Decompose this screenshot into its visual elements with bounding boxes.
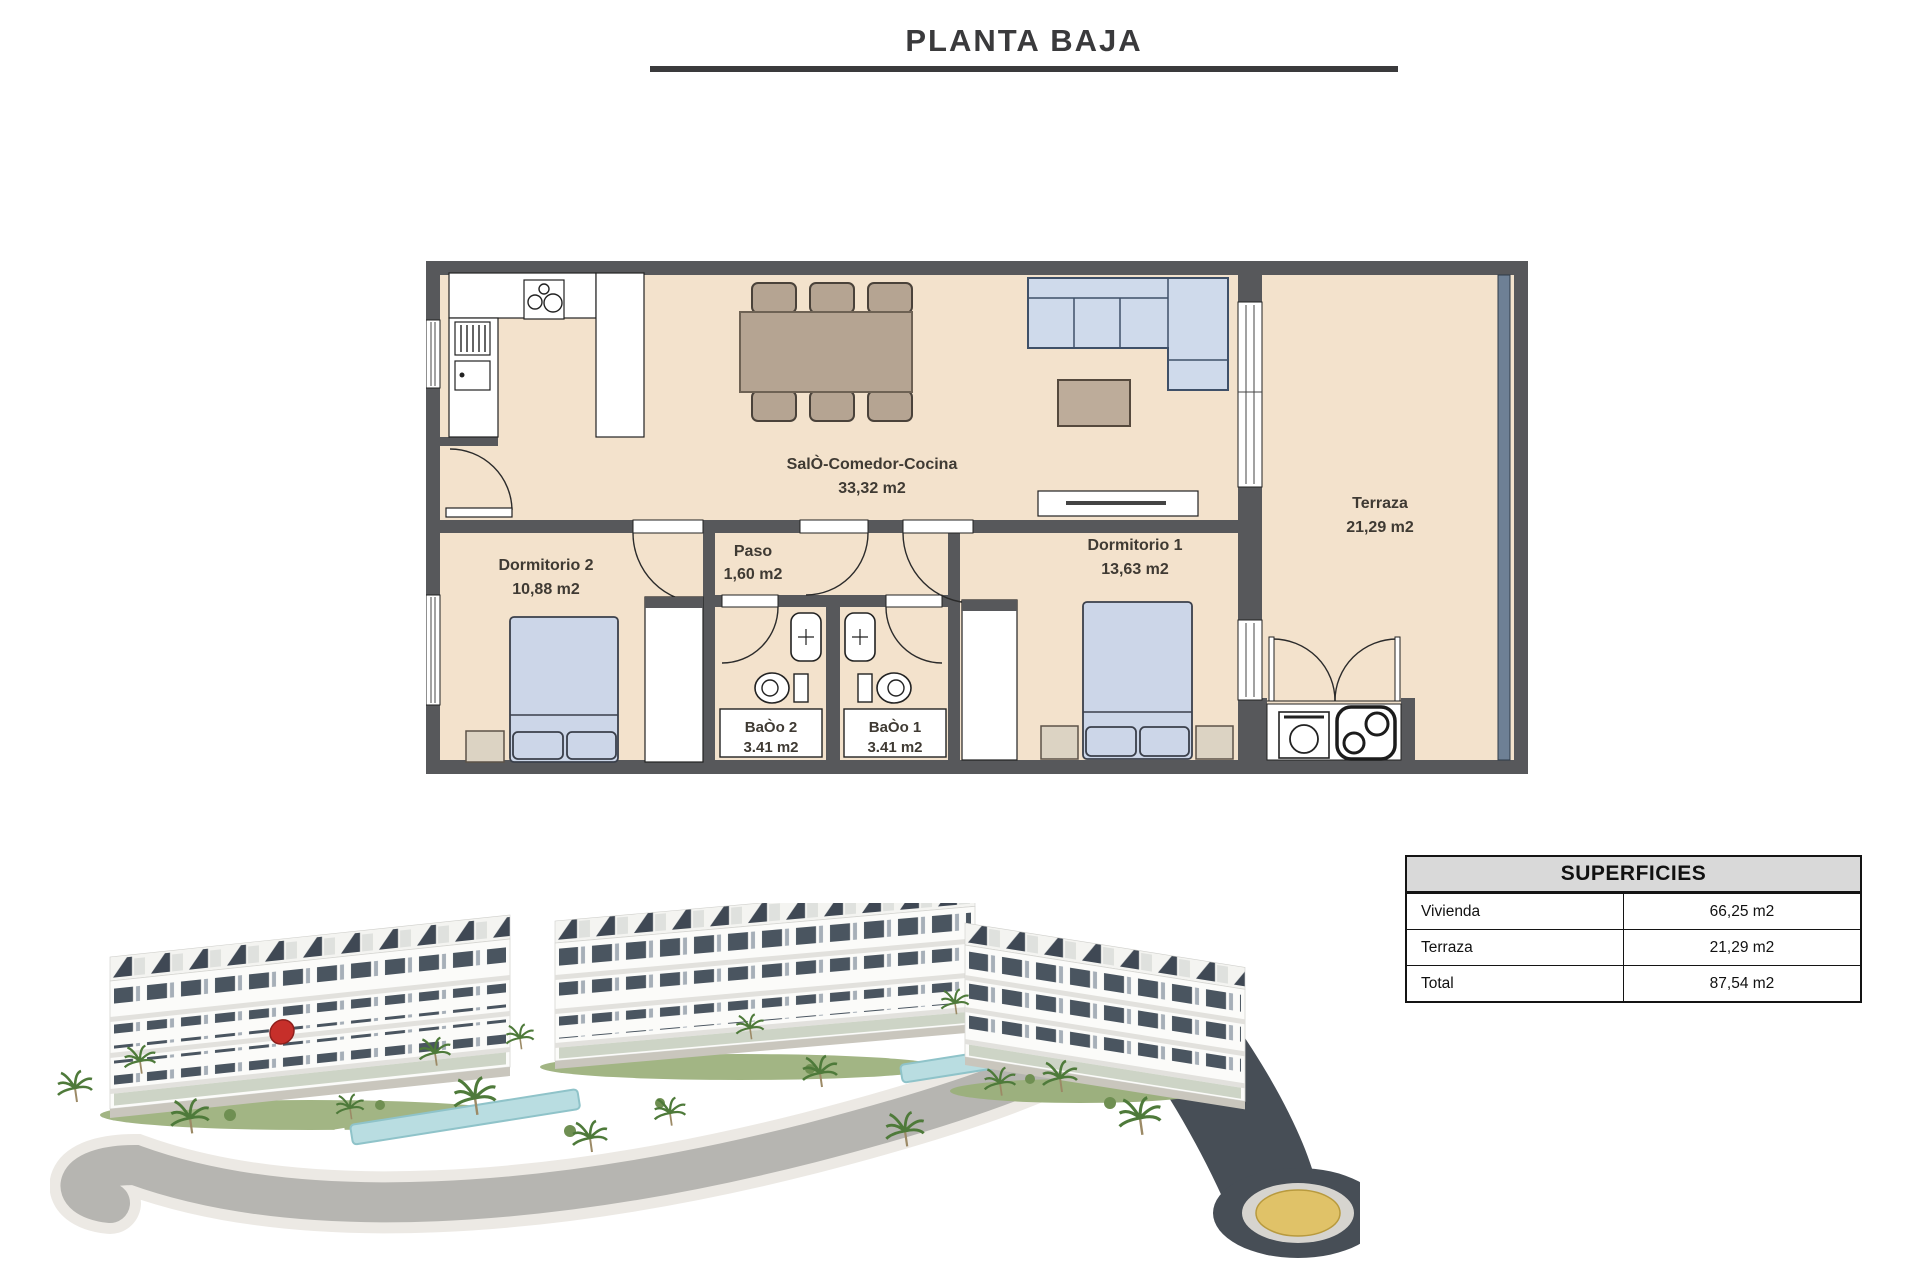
bedside-table bbox=[1196, 726, 1233, 759]
bedside-table bbox=[1041, 726, 1078, 759]
table-row: Total 87,54 m2 bbox=[1407, 965, 1860, 1001]
dining-chair bbox=[810, 283, 854, 313]
title-underline bbox=[650, 66, 1398, 72]
room-label-dormitorio2: Dormitorio 2 bbox=[498, 557, 593, 574]
room-label-salon: SalÒ-Comedor-Cocina bbox=[787, 454, 958, 473]
building-render bbox=[50, 903, 1360, 1273]
row-label: Total bbox=[1407, 966, 1624, 1001]
wardrobe bbox=[645, 597, 703, 762]
laundry-area bbox=[1267, 704, 1401, 760]
dining-chair bbox=[868, 283, 912, 313]
toilet bbox=[858, 673, 911, 703]
terrace-glass-railing bbox=[1498, 275, 1510, 760]
building-block-middle bbox=[555, 903, 975, 1069]
washing-machine bbox=[1279, 712, 1329, 758]
dining-set bbox=[740, 283, 912, 421]
title-block: PLANTA BAJA bbox=[650, 22, 1398, 72]
kitchen-island bbox=[596, 273, 644, 437]
page: PLANTA BAJA bbox=[0, 0, 1920, 1280]
room-area-salon: 33,32 m2 bbox=[838, 480, 906, 497]
page-title: PLANTA BAJA bbox=[650, 22, 1398, 61]
table-row: Vivienda 66,25 m2 bbox=[1407, 893, 1860, 929]
superficies-header: SUPERFICIES bbox=[1407, 857, 1860, 893]
bedroom1-furniture bbox=[962, 600, 1233, 760]
building-block-left bbox=[110, 915, 510, 1118]
dining-chair bbox=[752, 391, 796, 421]
coffee-table bbox=[1058, 380, 1130, 426]
room-area-bano1: 3.41 m2 bbox=[867, 739, 922, 756]
table-row: Terraza 21,29 m2 bbox=[1407, 929, 1860, 965]
room-area-dormitorio2: 10,88 m2 bbox=[512, 581, 580, 598]
dining-table bbox=[740, 312, 912, 392]
dining-chair bbox=[810, 391, 854, 421]
dining-chair bbox=[752, 283, 796, 313]
row-label: Vivienda bbox=[1407, 894, 1624, 929]
kitchen-counter bbox=[449, 273, 596, 318]
entrance-door-leaf bbox=[446, 508, 512, 517]
room-label-bano1: BaÒo 1 bbox=[869, 718, 922, 736]
row-value: 66,25 m2 bbox=[1624, 894, 1860, 929]
room-area-dormitorio1: 13,63 m2 bbox=[1101, 561, 1169, 578]
tv-unit bbox=[1038, 491, 1198, 516]
row-value: 87,54 m2 bbox=[1624, 966, 1860, 1001]
wardrobe bbox=[962, 600, 1017, 760]
toilet bbox=[755, 673, 808, 703]
bed-dormitorio2 bbox=[510, 617, 618, 762]
room-label-dormitorio1: Dormitorio 1 bbox=[1087, 537, 1182, 554]
room-area-paso: 1,60 m2 bbox=[724, 566, 783, 583]
bed-dormitorio1 bbox=[1083, 602, 1192, 759]
room-label-paso: Paso bbox=[734, 543, 772, 560]
room-area-terraza: 21,29 m2 bbox=[1346, 519, 1414, 536]
row-label: Terraza bbox=[1407, 930, 1624, 965]
floor-plan: SalÒ-Comedor-Cocina 33,32 m2 Terraza 21,… bbox=[426, 261, 1528, 774]
dining-chair bbox=[868, 391, 912, 421]
superficies-table: SUPERFICIES Vivienda 66,25 m2 Terraza 21… bbox=[1405, 855, 1862, 1003]
room-label-terraza: Terraza bbox=[1352, 495, 1408, 512]
room-label-bano2: BaÒo 2 bbox=[745, 718, 798, 736]
row-value: 21,29 m2 bbox=[1624, 930, 1860, 965]
room-area-bano2: 3.41 m2 bbox=[743, 739, 798, 756]
bedside-table bbox=[466, 731, 504, 762]
boiler bbox=[1337, 707, 1395, 759]
